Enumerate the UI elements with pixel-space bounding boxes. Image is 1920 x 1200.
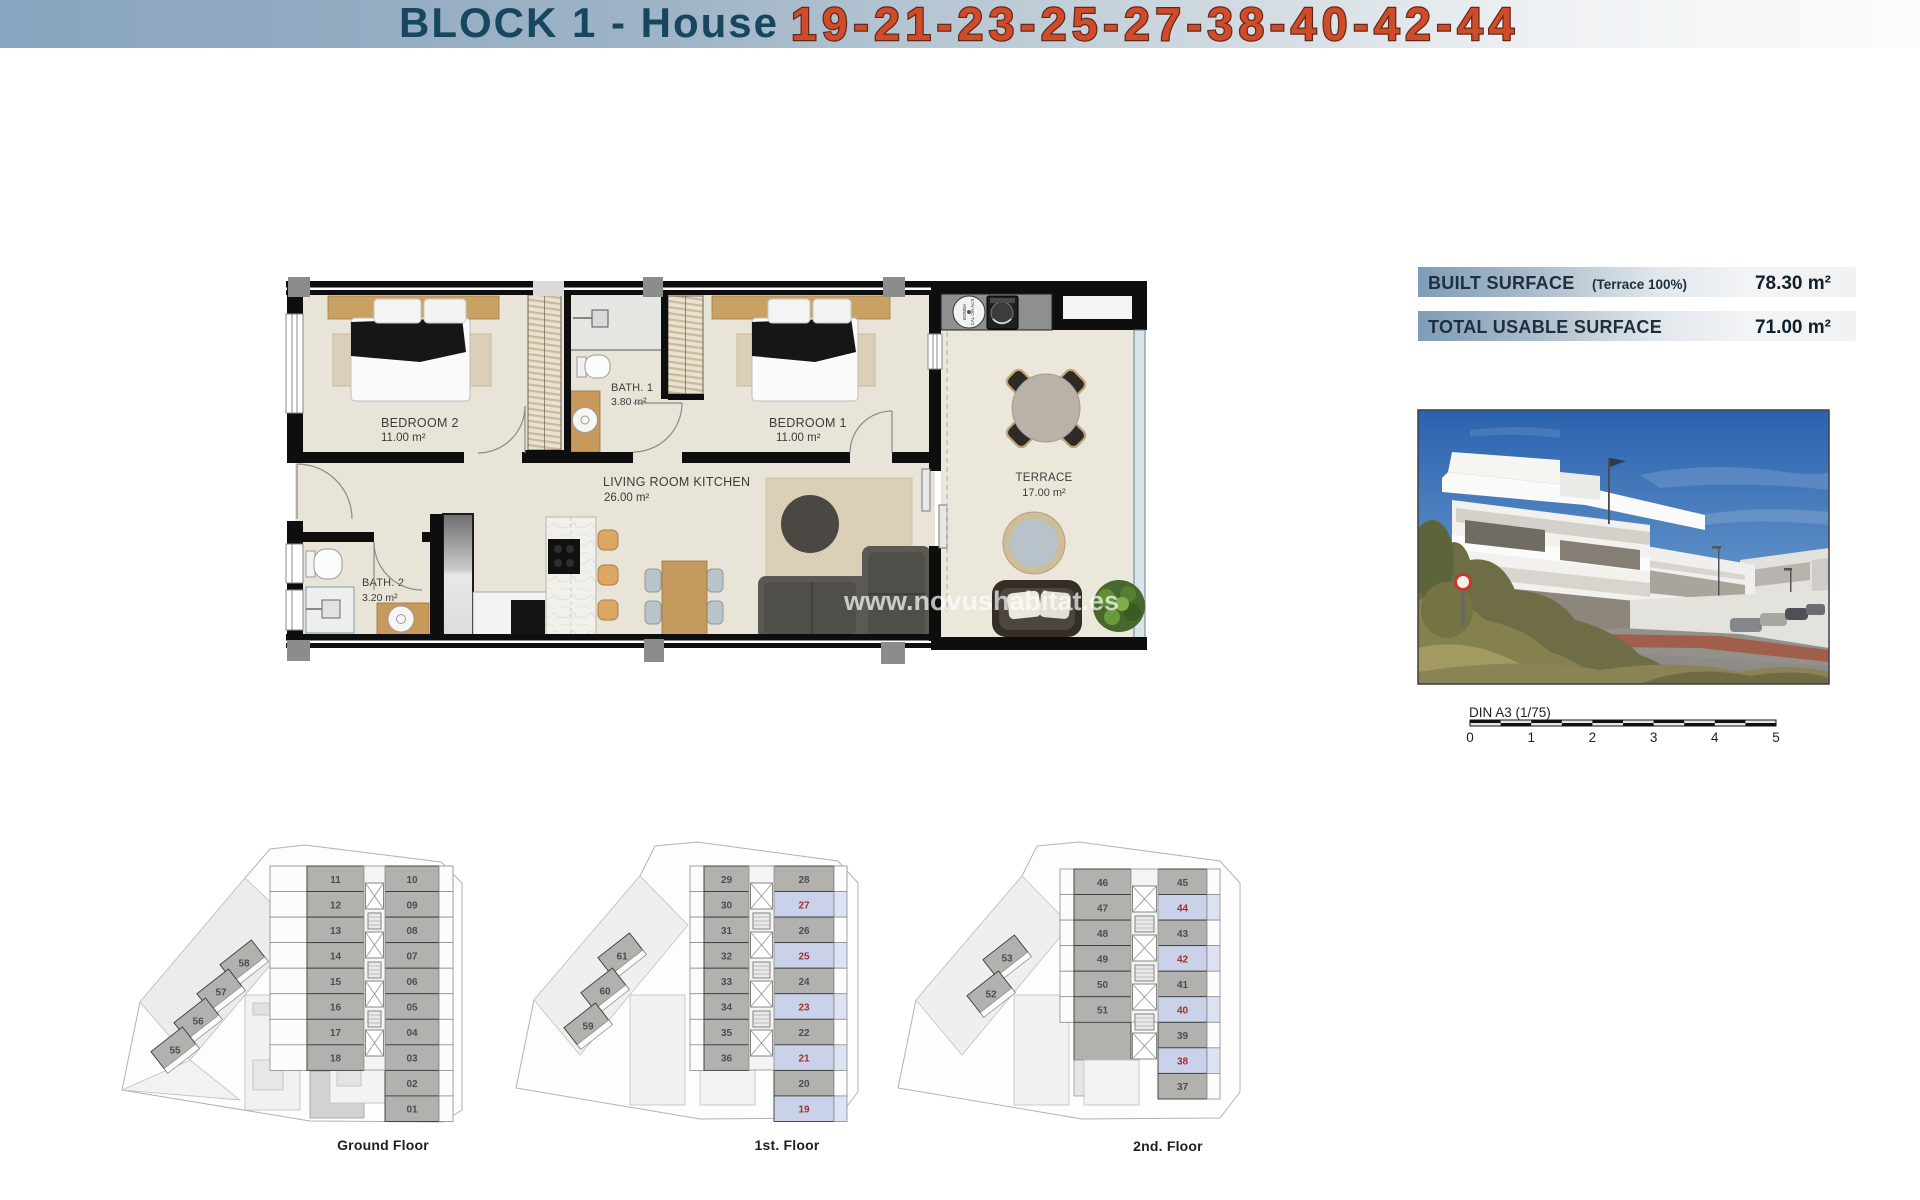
svg-text:16: 16 — [330, 1003, 342, 1014]
svg-text:(Terrace 100%): (Terrace 100%) — [1592, 277, 1687, 292]
svg-text:2nd. Floor: 2nd. Floor — [1133, 1138, 1203, 1154]
svg-text:29: 29 — [721, 875, 733, 886]
svg-text:BEDROOM 2: BEDROOM 2 — [381, 416, 459, 430]
svg-text:17: 17 — [330, 1028, 342, 1039]
svg-text:34: 34 — [721, 1003, 733, 1014]
svg-text:11: 11 — [330, 875, 341, 886]
svg-text:06: 06 — [406, 977, 418, 988]
svg-text:27: 27 — [798, 900, 810, 911]
svg-text:44: 44 — [1177, 903, 1189, 914]
svg-text:25: 25 — [798, 951, 810, 962]
svg-text:28: 28 — [798, 875, 810, 886]
svg-text:50: 50 — [1097, 980, 1109, 991]
svg-text:38: 38 — [1177, 1057, 1189, 1068]
svg-text:43: 43 — [1177, 929, 1189, 940]
svg-text:11.00 m²: 11.00 m² — [381, 432, 426, 444]
svg-text:08: 08 — [406, 926, 418, 937]
svg-text:41: 41 — [1177, 980, 1189, 991]
svg-text:22: 22 — [798, 1028, 810, 1039]
svg-text:04: 04 — [406, 1028, 418, 1039]
svg-text:60: 60 — [599, 987, 611, 998]
svg-text:11.00 m²: 11.00 m² — [776, 432, 821, 444]
svg-text:20: 20 — [798, 1079, 810, 1090]
svg-text:10: 10 — [406, 875, 418, 886]
svg-text:BLOCK 1 - House: BLOCK 1 - House — [399, 0, 779, 46]
svg-text:57: 57 — [215, 988, 227, 999]
svg-text:BOMBA: BOMBA — [962, 304, 967, 320]
svg-text:2: 2 — [1589, 730, 1597, 745]
svg-text:LIVING ROOM KITCHEN: LIVING ROOM KITCHEN — [603, 475, 750, 489]
svg-text:03: 03 — [406, 1054, 418, 1065]
svg-text:58: 58 — [238, 959, 250, 970]
svg-text:19-21-23-25-27-38-40-42-44: 19-21-23-25-27-38-40-42-44 — [791, 0, 1520, 50]
svg-text:TOTAL USABLE SURFACE: TOTAL USABLE SURFACE — [1428, 317, 1662, 337]
svg-text:Ground Floor: Ground Floor — [337, 1137, 429, 1153]
svg-text:55: 55 — [169, 1046, 181, 1057]
svg-text:02: 02 — [406, 1079, 418, 1090]
svg-text:53: 53 — [1001, 954, 1013, 965]
svg-text:3.80 m²: 3.80 m² — [611, 396, 647, 408]
svg-text:BEDROOM 1: BEDROOM 1 — [769, 416, 847, 430]
svg-text:40: 40 — [1177, 1006, 1189, 1017]
svg-text:45: 45 — [1177, 878, 1189, 889]
svg-text:CAL OH ACS: CAL OH ACS — [970, 299, 975, 326]
svg-text:23: 23 — [798, 1003, 810, 1014]
svg-text:19: 19 — [798, 1105, 810, 1116]
svg-text:49: 49 — [1097, 954, 1109, 965]
svg-text:26.00 m²: 26.00 m² — [604, 492, 650, 504]
svg-text:BATH. 1: BATH. 1 — [611, 382, 653, 394]
svg-text:05: 05 — [406, 1003, 418, 1014]
svg-text:3: 3 — [1650, 730, 1658, 745]
svg-text:5: 5 — [1772, 730, 1780, 745]
svg-text:www.novushabitat.es: www.novushabitat.es — [843, 586, 1119, 616]
svg-text:48: 48 — [1097, 929, 1109, 940]
svg-text:51: 51 — [1097, 1006, 1109, 1017]
svg-text:17.00 m²: 17.00 m² — [1022, 487, 1066, 499]
svg-text:3.20 m²: 3.20 m² — [362, 592, 398, 604]
svg-text:61: 61 — [616, 952, 628, 963]
svg-text:0: 0 — [1466, 730, 1474, 745]
svg-text:39: 39 — [1177, 1031, 1189, 1042]
svg-text:71.00 m²: 71.00 m² — [1755, 317, 1831, 338]
svg-text:BUILT SURFACE: BUILT SURFACE — [1428, 273, 1575, 293]
svg-text:31: 31 — [721, 926, 733, 937]
svg-text:46: 46 — [1097, 878, 1109, 889]
svg-text:14: 14 — [330, 951, 342, 962]
svg-text:07: 07 — [406, 951, 418, 962]
svg-text:4: 4 — [1711, 730, 1719, 745]
svg-text:78.30 m²: 78.30 m² — [1755, 273, 1831, 294]
svg-text:59: 59 — [582, 1022, 594, 1033]
svg-text:37: 37 — [1177, 1082, 1189, 1093]
svg-text:52: 52 — [985, 990, 997, 1001]
svg-text:36: 36 — [721, 1054, 733, 1065]
svg-text:09: 09 — [406, 900, 418, 911]
svg-text:1st. Floor: 1st. Floor — [754, 1137, 819, 1153]
svg-text:26: 26 — [798, 926, 810, 937]
svg-text:35: 35 — [721, 1028, 733, 1039]
svg-text:21: 21 — [798, 1054, 810, 1065]
svg-text:24: 24 — [798, 977, 810, 988]
svg-text:TERRACE: TERRACE — [1015, 472, 1072, 484]
svg-text:13: 13 — [330, 926, 342, 937]
svg-text:DIN A3 (1/75): DIN A3 (1/75) — [1469, 705, 1551, 720]
svg-text:42: 42 — [1177, 954, 1189, 965]
svg-text:01: 01 — [406, 1105, 418, 1116]
svg-text:15: 15 — [330, 977, 342, 988]
svg-text:12: 12 — [330, 900, 342, 911]
svg-text:56: 56 — [192, 1017, 204, 1028]
svg-text:1: 1 — [1527, 730, 1535, 745]
svg-text:32: 32 — [721, 951, 733, 962]
svg-text:30: 30 — [721, 900, 733, 911]
svg-text:18: 18 — [330, 1054, 342, 1065]
svg-text:47: 47 — [1097, 903, 1109, 914]
svg-text:33: 33 — [721, 977, 733, 988]
